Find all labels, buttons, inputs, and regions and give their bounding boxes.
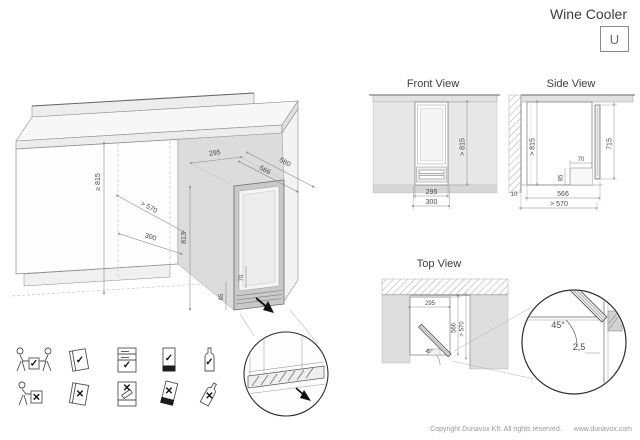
side-dim-vent-depth: 70 bbox=[578, 157, 585, 163]
pictogram-panel: ✓ ✓ ✓ ✓ ✓ ✕ bbox=[8, 344, 230, 416]
door-detail-circle: 45° 2,5 bbox=[522, 265, 626, 394]
top-view-and-detail: Top View 295 566 > 570 45° bbox=[378, 253, 640, 403]
side-vent-recess bbox=[570, 168, 592, 185]
cross-glyph: ✕ bbox=[165, 386, 173, 397]
top-view-title: Top View bbox=[417, 258, 461, 270]
dim-unit-height: 813 bbox=[181, 232, 188, 244]
side-dim-vent-height: 85 bbox=[559, 174, 565, 181]
detail-wall-corner bbox=[608, 311, 622, 331]
front-view-title: Front View bbox=[407, 78, 459, 90]
front-vent-grille bbox=[417, 167, 447, 182]
dim-vent-depth: 70 bbox=[239, 274, 245, 281]
side-dim-niche-depth: > 570 bbox=[550, 201, 568, 208]
side-dim-height: > 815 bbox=[530, 138, 537, 156]
copyright-text: Copyright Dunavox Kft. All rights reserv… bbox=[430, 426, 562, 433]
front-countertop bbox=[373, 95, 497, 102]
website-text: www.dunavox.com bbox=[574, 426, 632, 433]
side-view-drawing: Side View bbox=[509, 78, 635, 211]
check-glyph: ✓ bbox=[76, 355, 84, 366]
check-glyph: ✓ bbox=[123, 360, 131, 371]
front-unit-glass bbox=[421, 109, 443, 161]
front-wall-left bbox=[373, 102, 415, 185]
detail-gap-label: 2,5 bbox=[573, 342, 586, 352]
dim-vent-height: 85 bbox=[219, 293, 225, 300]
side-dim-rear-gap: 10 bbox=[511, 192, 518, 198]
side-countertop bbox=[521, 95, 633, 102]
series-badge: U bbox=[600, 26, 629, 52]
front-dim-height: > 815 bbox=[460, 138, 467, 156]
icon-read-manual-do: ✓ bbox=[64, 346, 94, 374]
check-glyph: ✓ bbox=[205, 357, 213, 368]
wine-cooler-unit bbox=[234, 180, 284, 313]
datasheet-page: Wine Cooler U bbox=[0, 0, 640, 440]
unit-door-glass bbox=[243, 191, 275, 287]
icon-load-correctly-do: ✓ bbox=[114, 346, 140, 374]
top-view-drawing: Top View 295 566 > 570 45° bbox=[382, 258, 534, 379]
top-dim-unit-depth: 566 bbox=[452, 322, 458, 333]
top-dim-door-angle: 45° bbox=[425, 349, 433, 355]
series-badge-letter: U bbox=[610, 32, 619, 47]
cross-glyph: ✕ bbox=[32, 393, 40, 404]
check-glyph: ✓ bbox=[165, 353, 173, 364]
cross-glyph: ✕ bbox=[76, 389, 84, 400]
icon-keep-upright-do: ✓ bbox=[158, 346, 180, 374]
front-dim-niche-width: 300 bbox=[426, 199, 438, 206]
top-door-swing-arc bbox=[436, 355, 440, 365]
icon-bottle-upright-do: ✓ bbox=[200, 346, 218, 374]
top-dim-unit-width: 295 bbox=[425, 301, 436, 307]
dim-niche-height: ≥ 815 bbox=[95, 173, 102, 191]
dim-opening-width: 295 bbox=[209, 149, 222, 157]
top-counter-left bbox=[382, 295, 410, 363]
front-dim-unit-width: 295 bbox=[426, 189, 438, 196]
side-wall-hatched bbox=[509, 95, 521, 193]
icon-tilt-bottle-dont: ✕ bbox=[200, 380, 218, 408]
front-side-views: Front View bbox=[365, 75, 640, 225]
cross-glyph: ✕ bbox=[123, 383, 131, 394]
side-dim-door-height: 715 bbox=[607, 138, 614, 150]
icon-load-incorrectly-dont: ✕ bbox=[114, 380, 140, 408]
page-title: Wine Cooler bbox=[550, 6, 627, 22]
check-glyph: ✓ bbox=[30, 359, 38, 370]
icon-carry-two-persons-do: ✓ bbox=[10, 346, 58, 374]
top-counter-right bbox=[470, 295, 508, 369]
icon-ignore-manual-dont: ✕ bbox=[64, 380, 94, 408]
front-wall-right bbox=[448, 102, 497, 185]
detail-angle-label: 45° bbox=[551, 320, 565, 330]
cross-glyph: ✕ bbox=[205, 391, 213, 402]
icon-carry-alone-dont: ✕ bbox=[10, 380, 58, 408]
top-dim-niche-depth: > 570 bbox=[460, 321, 466, 337]
top-wall-hatched bbox=[382, 279, 508, 295]
side-view-title: Side View bbox=[547, 78, 596, 90]
front-view-drawing: Front View bbox=[369, 78, 500, 209]
side-dim-unit-depth: 566 bbox=[557, 191, 569, 198]
icon-tilt-unit-dont: ✕ bbox=[158, 380, 180, 408]
footer: Copyright Dunavox Kft. All rights reserv… bbox=[420, 426, 632, 433]
